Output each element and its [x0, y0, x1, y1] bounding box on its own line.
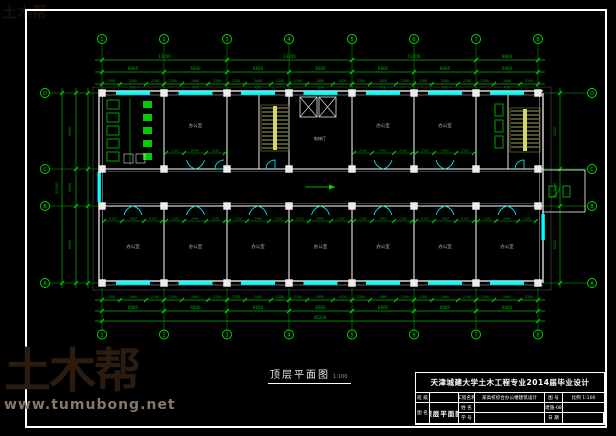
toilet-fixture [143, 114, 152, 121]
window-segment [241, 91, 275, 95]
dim-text: 6600 [128, 66, 139, 71]
column-marker [224, 203, 231, 210]
window-segment [304, 281, 338, 285]
dim-text: 2100 [276, 295, 284, 299]
door-arc [436, 206, 445, 215]
column-marker [224, 280, 231, 287]
dim-text: 2400 [129, 79, 137, 83]
column-marker [349, 203, 356, 210]
dim-text: 13200 [158, 54, 171, 59]
dim-text: 2100 [463, 79, 471, 83]
column-marker [473, 90, 480, 97]
dim-text: 2100 [169, 79, 177, 83]
window-segment [241, 281, 275, 285]
dim-text: 2400 [316, 217, 324, 221]
door-arc [507, 206, 516, 215]
watermark-url: www.tumubong.net [4, 397, 176, 413]
window-tag: C-1 [193, 86, 198, 90]
dim-text: 2100 [149, 217, 157, 221]
window-segment [428, 281, 462, 285]
dim-text: 2400 [316, 295, 324, 299]
dim-text: 2100 [276, 79, 284, 83]
room-label: 办公室 [314, 243, 328, 250]
door-arc [515, 160, 524, 169]
cad-screenshot: 土木帮 1122334455667788DDCCBBAA132001320013… [0, 0, 616, 436]
grid-bubble-label: 2 [162, 37, 165, 43]
plan-title-text: 顶层平面图 [270, 370, 330, 381]
toilet-fixture [143, 127, 152, 134]
dim-text: 2400 [191, 217, 199, 221]
grid-bubble-label: 7 [474, 333, 477, 339]
dim-text: 2100 [421, 217, 429, 221]
title-block-header: 天津城建大学土木工程专业2014届毕业设计 [416, 373, 604, 393]
grid-bubble-label: B [590, 204, 594, 210]
column-marker [161, 280, 168, 287]
eave-outline [93, 87, 551, 290]
grid-bubble-label: 1 [100, 37, 103, 43]
tb-id-value [475, 413, 545, 424]
window-segment [116, 281, 150, 285]
column-marker [224, 90, 231, 97]
dim-text: 2100 [274, 217, 282, 221]
dim-text: 2100 [421, 149, 429, 153]
column-marker [473, 203, 480, 210]
dim-text: 2400 [503, 79, 511, 83]
plan-title: 顶层平面图1:100 [268, 366, 351, 384]
window-segment [304, 91, 338, 95]
dim-text: 6600 [502, 305, 513, 310]
dim-text: 2100 [523, 217, 531, 221]
dim-text: 8100 [68, 126, 72, 136]
dim-text: 2100 [399, 217, 407, 221]
grid-bubble-label: D [43, 91, 47, 97]
door-arc [196, 160, 205, 169]
toilet-stall [107, 126, 119, 135]
dim-text: 2100 [461, 217, 469, 221]
column-marker [411, 280, 418, 287]
door-arc [187, 206, 196, 215]
title-block: 天津城建大学土木工程专业2014届毕业设计 班 级 工程名称 某高校综合办公楼建… [415, 372, 605, 425]
door-arc [445, 206, 454, 215]
column-marker [473, 166, 480, 173]
door-arc [374, 160, 383, 169]
door-arc [133, 206, 142, 215]
dim-text: 2100 [337, 217, 345, 221]
dim-text: 2100 [483, 217, 491, 221]
service-shaft [495, 104, 503, 116]
dim-text: 2100 [151, 79, 159, 83]
dim-text: 2100 [294, 79, 302, 83]
dim-text: 2100 [525, 295, 533, 299]
door-arc [498, 206, 507, 215]
dim-text: 2400 [254, 79, 262, 83]
dim-text: 8100 [553, 239, 557, 249]
dim-text: 6600 [253, 305, 264, 310]
window-segment [490, 281, 524, 285]
column-marker [535, 90, 542, 97]
dim-text: 2400 [316, 79, 324, 83]
dim-text: 2400 [379, 217, 387, 221]
toilet-fixture [143, 140, 152, 147]
dim-text: 6600 [378, 66, 389, 71]
column-marker [411, 90, 418, 97]
window-segment [366, 281, 400, 285]
room-label: 办公室 [126, 243, 140, 250]
column-marker [286, 90, 293, 97]
dim-text: 46200 [314, 315, 327, 320]
room-label: 电梯厅 [314, 135, 327, 142]
dim-text: 2100 [525, 79, 533, 83]
door-arc [312, 206, 321, 215]
tb-scale-value: 比例 1:100 [563, 393, 604, 403]
dim-text: 2100 [212, 149, 220, 153]
dim-text: 6600 [190, 66, 201, 71]
service-shaft [495, 136, 503, 148]
door-arc [374, 206, 383, 215]
dim-text: 2400 [254, 295, 262, 299]
entry-door-leaf [563, 186, 570, 197]
window-tag: C-1 [504, 86, 509, 90]
door-arc [266, 160, 275, 169]
column-marker [224, 166, 231, 173]
tb-sheetno-value: 建施-08 [545, 403, 563, 413]
watermark: 土木帮 www.tumubong.net [4, 348, 176, 413]
dim-text: 2400 [254, 217, 262, 221]
dim-text: 6600 [378, 305, 389, 310]
window-tag: C-1 [255, 86, 260, 90]
dim-text: 8100 [68, 239, 72, 249]
dim-text: 2100 [338, 295, 346, 299]
dim-text: 6600 [190, 305, 201, 310]
room-label: 办公室 [251, 243, 265, 250]
column-marker [349, 280, 356, 287]
dim-text: 6600 [315, 66, 326, 71]
door-arc [187, 160, 196, 169]
dim-text: 2400 [129, 217, 137, 221]
dim-text: 2100 [151, 295, 159, 299]
toilet-stall [107, 139, 119, 148]
dim-text: 6600 [440, 305, 451, 310]
tb-name-label: 姓 名 [459, 403, 475, 413]
column-marker [99, 90, 106, 97]
toilet-stall [107, 100, 119, 109]
column-marker [161, 166, 168, 173]
room-label: 办公室 [438, 243, 452, 250]
grid-bubble-label: 3 [225, 37, 228, 43]
window-segment [179, 281, 213, 285]
window-segment [541, 214, 544, 240]
door-arc [249, 206, 258, 215]
tb-id-label: 学 号 [459, 413, 475, 424]
window-tag: C-1 [130, 86, 135, 90]
plan-scale: 1:100 [333, 374, 347, 380]
dim-text: 2100 [212, 217, 220, 221]
title-block-table: 班 级 工程名称 某高校综合办公楼建筑设计 图 号 比例 1:100 姓 名 图… [416, 393, 604, 424]
dim-text: 3900 [553, 182, 557, 192]
dim-text: 2400 [441, 149, 449, 153]
dim-text: 2100 [359, 217, 367, 221]
column-marker [161, 90, 168, 97]
column-marker [99, 203, 106, 210]
watermark-logo: 土木帮 [4, 348, 176, 395]
window-segment [98, 172, 101, 202]
tb-blank-2 [563, 413, 604, 424]
column-marker [349, 90, 356, 97]
dim-text: 2100 [359, 149, 367, 153]
door-arc [445, 160, 454, 169]
column-marker [473, 280, 480, 287]
tb-blank-1 [563, 403, 604, 413]
grid-bubble-label: 4 [287, 333, 290, 339]
dim-text: 2100 [234, 217, 242, 221]
door-arc [124, 206, 133, 215]
grid-bubble-label: 5 [350, 333, 353, 339]
column-marker [535, 203, 542, 210]
tb-drawing-label: 图 名 [416, 403, 430, 424]
grid-bubble-label: A [43, 281, 47, 287]
column-marker [99, 280, 106, 287]
tb-project-name: 某高校综合办公楼建筑设计 [475, 393, 545, 403]
dim-text: 6600 [502, 66, 513, 71]
dim-text: 2100 [109, 217, 117, 221]
column-marker [411, 166, 418, 173]
dim-text: 2100 [401, 295, 409, 299]
dim-text: 2400 [441, 217, 449, 221]
column-marker [161, 203, 168, 210]
dim-text: 2100 [213, 79, 221, 83]
room-label: 办公室 [189, 122, 203, 129]
dim-text: 2100 [296, 217, 304, 221]
dim-text: 2400 [379, 149, 387, 153]
stair-stringer [273, 106, 277, 150]
dim-text: 2100 [213, 295, 221, 299]
stair-stringer [523, 109, 527, 151]
service-shaft [495, 120, 503, 132]
grid-bubble-label: A [590, 281, 594, 287]
grid-bubble-label: C [43, 167, 47, 173]
tb-class-label: 班 级 [416, 393, 430, 403]
room-label: 办公室 [376, 243, 390, 250]
door-arc [215, 160, 224, 169]
tb-drawing-name: 顶层平面图 [430, 403, 459, 424]
door-arc [383, 206, 392, 215]
grid-bubble-label: 7 [474, 37, 477, 43]
column-marker [286, 280, 293, 287]
column-marker [535, 280, 542, 287]
dim-text: 3900 [68, 182, 72, 192]
grid-bubble-label: 6 [412, 37, 415, 43]
door-arc [321, 206, 330, 215]
tb-name-value [475, 403, 545, 413]
column-marker [286, 166, 293, 173]
grid-bubble-label: 2 [162, 333, 165, 339]
dim-text: 2100 [463, 295, 471, 299]
dim-text: 6600 [315, 305, 326, 310]
dim-text: 2100 [401, 79, 409, 83]
dim-text: 2400 [379, 295, 387, 299]
dim-text: 2100 [171, 217, 179, 221]
window-tag: C-1 [380, 86, 385, 90]
room-label: 办公室 [500, 243, 514, 250]
grid-bubble-label: 8 [536, 333, 539, 339]
column-marker [349, 166, 356, 173]
dim-text: 2100 [107, 79, 115, 83]
dim-text: 2400 [441, 79, 449, 83]
dim-text: 2400 [191, 149, 199, 153]
window-segment [428, 91, 462, 95]
door-arc [258, 206, 267, 215]
column-marker [286, 203, 293, 210]
grid-bubble-label: C [590, 167, 594, 173]
grid-bubble-label: B [43, 204, 47, 210]
grid-bubble-label: 6 [412, 333, 415, 339]
dim-text: 2400 [503, 295, 511, 299]
toilet-fixture [143, 101, 152, 108]
room-label: 办公室 [376, 122, 390, 129]
tb-class-value [430, 393, 459, 403]
dim-text: 2100 [481, 295, 489, 299]
door-arc [196, 206, 205, 215]
grid-bubble-label: 4 [287, 37, 290, 43]
grid-bubble-label: 8 [536, 37, 539, 43]
door-arc [436, 160, 445, 169]
column-marker [411, 203, 418, 210]
room-label: 办公室 [189, 243, 203, 250]
toilet-stall [107, 152, 119, 161]
dim-text: 2100 [481, 79, 489, 83]
dim-text: 2100 [461, 149, 469, 153]
room-label: 办公室 [438, 122, 452, 129]
dim-text: 2100 [232, 79, 240, 83]
grid-bubble-label: 3 [225, 333, 228, 339]
window-segment [490, 91, 524, 95]
corridor-arrow-head [329, 185, 335, 190]
toilet-stall [107, 113, 119, 122]
dim-text: 2400 [191, 295, 199, 299]
dim-text: 2100 [419, 295, 427, 299]
door-arc [383, 160, 392, 169]
tb-project-label: 工程名称 [459, 393, 475, 403]
tb-sheetno-label: 图 号 [545, 393, 563, 403]
dim-text: 2100 [169, 295, 177, 299]
dim-text: 13200 [283, 54, 296, 59]
dim-text: 2100 [107, 295, 115, 299]
window-segment [366, 91, 400, 95]
grid-bubble-label: 1 [100, 333, 103, 339]
window-tag: C-1 [318, 86, 323, 90]
dim-text: 2100 [232, 295, 240, 299]
window-tag: C-1 [442, 86, 447, 90]
dim-text: 2100 [171, 149, 179, 153]
column-marker [535, 166, 542, 173]
grid-bubble-label: 5 [350, 37, 353, 43]
column-marker [99, 166, 106, 173]
dim-text: 6600 [502, 54, 513, 59]
dim-text: 6600 [128, 305, 139, 310]
dim-text: 6600 [253, 66, 264, 71]
dim-text: 2100 [294, 295, 302, 299]
tb-date-label: 日 期 [545, 413, 563, 424]
dim-text: 2400 [379, 79, 387, 83]
window-segment [116, 91, 150, 95]
dim-text: 2100 [357, 295, 365, 299]
dim-text: 2400 [191, 79, 199, 83]
dim-text: 13200 [408, 54, 421, 59]
dim-text: 6600 [440, 66, 451, 71]
washbasin [124, 154, 133, 163]
dim-text: 20100 [55, 182, 59, 194]
dim-text: 2100 [357, 79, 365, 83]
grid-bubble-label: D [590, 91, 594, 97]
dim-text: 2400 [129, 295, 137, 299]
dim-text: 2400 [441, 295, 449, 299]
dim-text: 2100 [338, 79, 346, 83]
dim-text: 2400 [503, 217, 511, 221]
dim-text: 8100 [553, 126, 557, 136]
dim-text: 2100 [419, 79, 427, 83]
dim-text: 2100 [399, 149, 407, 153]
window-segment [179, 91, 213, 95]
